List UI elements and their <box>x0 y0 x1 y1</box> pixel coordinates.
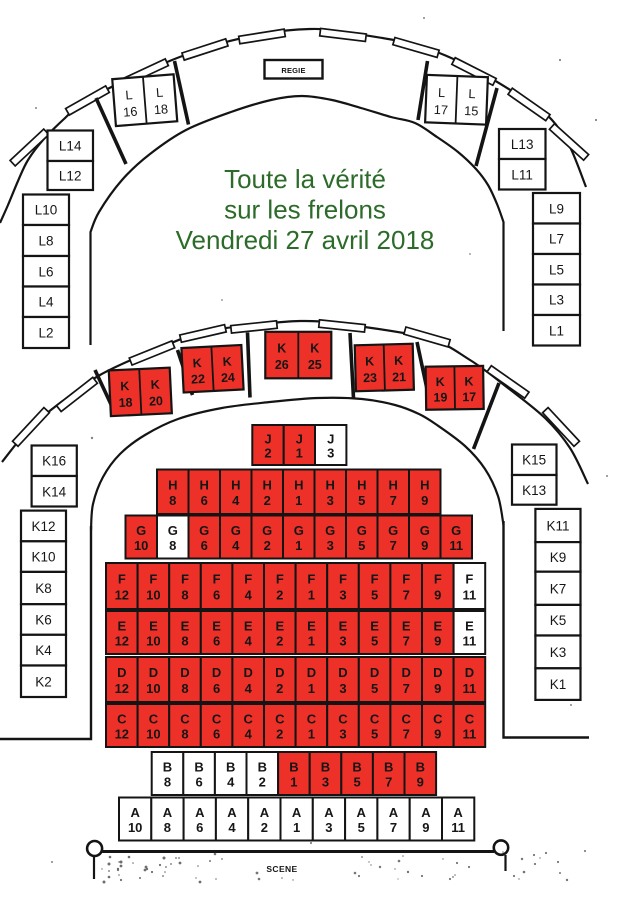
svg-text:4: 4 <box>228 820 236 835</box>
svg-text:A: A <box>389 805 399 820</box>
svg-text:22: 22 <box>191 372 206 387</box>
svg-text:A: A <box>260 805 270 820</box>
svg-text:H: H <box>263 477 272 492</box>
svg-text:2: 2 <box>276 588 283 603</box>
svg-text:C: C <box>402 711 412 726</box>
svg-text:G: G <box>199 523 209 538</box>
svg-text:7: 7 <box>403 681 410 696</box>
svg-text:11: 11 <box>463 633 477 648</box>
svg-text:B: B <box>352 759 361 774</box>
svg-text:15: 15 <box>464 103 479 119</box>
svg-text:9: 9 <box>421 493 428 508</box>
svg-text:11: 11 <box>463 681 477 696</box>
svg-text:K: K <box>436 375 445 389</box>
svg-text:F: F <box>276 571 284 586</box>
svg-text:E: E <box>307 618 316 633</box>
svg-text:5: 5 <box>358 493 365 508</box>
svg-text:L4: L4 <box>38 295 54 310</box>
svg-text:11: 11 <box>463 726 477 741</box>
svg-text:E: E <box>465 618 474 633</box>
svg-text:H: H <box>294 477 303 492</box>
svg-text:12: 12 <box>115 681 129 696</box>
svg-text:6: 6 <box>213 633 220 648</box>
svg-text:8: 8 <box>164 820 171 835</box>
svg-text:4: 4 <box>232 493 240 508</box>
svg-text:B: B <box>321 759 330 774</box>
svg-text:3: 3 <box>327 493 334 508</box>
svg-text:5: 5 <box>358 538 365 553</box>
svg-text:C: C <box>180 711 190 726</box>
svg-text:5: 5 <box>371 633 378 648</box>
svg-text:4: 4 <box>245 681 253 696</box>
svg-text:D: D <box>244 665 253 680</box>
svg-text:7: 7 <box>390 493 397 508</box>
svg-text:F: F <box>307 571 315 586</box>
svg-text:11: 11 <box>449 538 463 553</box>
svg-text:K: K <box>310 342 319 356</box>
svg-text:K12: K12 <box>31 519 55 534</box>
svg-text:7: 7 <box>390 820 397 835</box>
svg-text:8: 8 <box>169 493 176 508</box>
svg-text:18: 18 <box>118 395 133 410</box>
svg-text:L13: L13 <box>511 137 534 152</box>
svg-text:1: 1 <box>308 726 315 741</box>
svg-text:K16: K16 <box>42 454 66 469</box>
svg-text:1: 1 <box>295 538 302 553</box>
svg-text:9: 9 <box>421 538 428 553</box>
svg-text:sur les frelons: sur les frelons <box>224 195 386 225</box>
svg-text:G: G <box>294 523 304 538</box>
svg-text:8: 8 <box>164 774 171 789</box>
svg-text:E: E <box>433 618 442 633</box>
svg-text:1: 1 <box>308 633 315 648</box>
svg-text:1: 1 <box>308 588 315 603</box>
svg-text:1: 1 <box>296 445 303 460</box>
svg-text:D: D <box>370 665 379 680</box>
svg-text:A: A <box>453 805 463 820</box>
svg-text:8: 8 <box>181 588 188 603</box>
svg-text:3: 3 <box>327 538 334 553</box>
svg-text:K4: K4 <box>35 643 52 658</box>
svg-text:11: 11 <box>451 820 465 835</box>
svg-text:2: 2 <box>261 820 268 835</box>
svg-text:3: 3 <box>339 726 346 741</box>
svg-text:5: 5 <box>371 726 378 741</box>
svg-text:H: H <box>200 477 209 492</box>
svg-text:4: 4 <box>245 726 253 741</box>
svg-text:1: 1 <box>293 820 300 835</box>
svg-text:H: H <box>168 477 177 492</box>
svg-text:L7: L7 <box>549 232 564 247</box>
svg-text:K: K <box>222 355 232 369</box>
svg-text:F: F <box>371 571 379 586</box>
svg-text:H: H <box>357 477 366 492</box>
svg-text:2: 2 <box>276 633 283 648</box>
svg-text:1: 1 <box>308 681 315 696</box>
svg-text:C: C <box>244 711 254 726</box>
svg-text:K3: K3 <box>550 645 567 660</box>
svg-text:A: A <box>357 805 367 820</box>
svg-text:H: H <box>420 477 429 492</box>
svg-text:K15: K15 <box>522 453 546 468</box>
svg-text:L11: L11 <box>511 167 533 182</box>
svg-text:10: 10 <box>146 633 160 648</box>
svg-text:10: 10 <box>146 726 160 741</box>
svg-text:7: 7 <box>385 774 392 789</box>
svg-text:L: L <box>155 85 163 101</box>
svg-text:L10: L10 <box>35 203 58 218</box>
svg-text:G: G <box>325 523 335 538</box>
svg-text:E: E <box>370 618 379 633</box>
svg-text:D: D <box>465 665 474 680</box>
svg-text:A: A <box>195 805 205 820</box>
svg-text:L1: L1 <box>549 323 564 338</box>
svg-text:F: F <box>434 571 442 586</box>
svg-text:17: 17 <box>434 102 449 118</box>
svg-text:J: J <box>264 431 271 446</box>
svg-text:10: 10 <box>146 681 160 696</box>
svg-text:6: 6 <box>213 588 220 603</box>
svg-text:C: C <box>149 711 159 726</box>
svg-text:G: G <box>451 523 461 538</box>
svg-text:D: D <box>433 665 442 680</box>
svg-text:F: F <box>181 571 189 586</box>
svg-text:L2: L2 <box>38 326 53 341</box>
svg-text:9: 9 <box>417 774 424 789</box>
svg-text:C: C <box>275 711 285 726</box>
svg-text:6: 6 <box>196 820 203 835</box>
svg-text:3: 3 <box>339 588 346 603</box>
svg-text:B: B <box>384 759 393 774</box>
svg-text:K: K <box>394 354 403 368</box>
svg-text:9: 9 <box>434 726 441 741</box>
svg-text:L5: L5 <box>549 262 564 277</box>
svg-text:G: G <box>388 523 398 538</box>
svg-text:6: 6 <box>213 726 220 741</box>
svg-text:F: F <box>402 571 410 586</box>
svg-text:2: 2 <box>264 493 271 508</box>
svg-text:J: J <box>296 431 303 446</box>
svg-text:B: B <box>226 759 235 774</box>
svg-text:2: 2 <box>259 774 266 789</box>
svg-text:2: 2 <box>276 726 283 741</box>
svg-text:8: 8 <box>181 726 188 741</box>
svg-text:F: F <box>339 571 347 586</box>
svg-text:G: G <box>231 523 241 538</box>
svg-text:K1: K1 <box>550 677 567 692</box>
svg-text:J: J <box>327 431 334 446</box>
svg-text:25: 25 <box>308 358 322 372</box>
svg-text:C: C <box>338 711 348 726</box>
svg-text:K13: K13 <box>522 483 546 498</box>
svg-text:SCENE: SCENE <box>266 864 297 874</box>
svg-text:L6: L6 <box>38 264 53 279</box>
svg-text:7: 7 <box>403 726 410 741</box>
svg-text:7: 7 <box>403 633 410 648</box>
svg-text:3: 3 <box>325 820 332 835</box>
svg-text:21: 21 <box>392 370 406 384</box>
svg-text:11: 11 <box>463 588 477 603</box>
svg-text:D: D <box>338 665 347 680</box>
svg-text:12: 12 <box>115 726 129 741</box>
svg-text:26: 26 <box>275 358 289 372</box>
svg-text:A: A <box>131 805 141 820</box>
svg-text:K5: K5 <box>550 613 567 628</box>
svg-text:2: 2 <box>264 445 271 460</box>
svg-text:B: B <box>416 759 425 774</box>
svg-text:20: 20 <box>149 394 164 409</box>
svg-text:F: F <box>118 571 126 586</box>
svg-text:K: K <box>192 356 202 370</box>
svg-text:F: F <box>244 571 252 586</box>
svg-text:H: H <box>389 477 398 492</box>
svg-text:A: A <box>421 805 431 820</box>
svg-text:G: G <box>262 523 272 538</box>
svg-text:E: E <box>244 618 253 633</box>
svg-text:K: K <box>464 375 473 389</box>
svg-text:H: H <box>231 477 240 492</box>
svg-text:G: G <box>420 523 430 538</box>
svg-text:A: A <box>292 805 302 820</box>
svg-text:K: K <box>150 378 160 392</box>
svg-text:Toute la vérité: Toute la vérité <box>224 164 386 194</box>
svg-text:C: C <box>212 711 222 726</box>
svg-text:4: 4 <box>245 588 253 603</box>
svg-text:G: G <box>357 523 367 538</box>
svg-text:K: K <box>365 354 374 368</box>
svg-text:8: 8 <box>181 633 188 648</box>
svg-text:C: C <box>307 711 317 726</box>
svg-text:L8: L8 <box>38 234 53 249</box>
svg-text:D: D <box>117 665 126 680</box>
svg-text:L12: L12 <box>59 169 82 184</box>
svg-text:9: 9 <box>422 820 429 835</box>
svg-text:4: 4 <box>245 633 253 648</box>
svg-text:A: A <box>163 805 173 820</box>
svg-text:G: G <box>136 523 146 538</box>
svg-text:5: 5 <box>353 774 360 789</box>
svg-text:F: F <box>465 571 473 586</box>
svg-text:K7: K7 <box>550 581 567 596</box>
svg-text:D: D <box>149 665 158 680</box>
svg-text:B: B <box>289 759 298 774</box>
svg-text:A: A <box>324 805 334 820</box>
svg-text:F: F <box>149 571 157 586</box>
svg-text:6: 6 <box>201 493 208 508</box>
svg-text:3: 3 <box>327 445 334 460</box>
svg-text:19: 19 <box>433 390 447 404</box>
svg-text:E: E <box>181 618 190 633</box>
svg-text:6: 6 <box>213 681 220 696</box>
svg-text:K2: K2 <box>35 674 52 689</box>
svg-text:1: 1 <box>290 774 297 789</box>
svg-text:9: 9 <box>434 588 441 603</box>
svg-text:E: E <box>339 618 348 633</box>
svg-text:4: 4 <box>232 538 240 553</box>
svg-text:K11: K11 <box>546 519 569 534</box>
svg-text:E: E <box>149 618 158 633</box>
svg-text:8: 8 <box>169 538 176 553</box>
svg-text:10: 10 <box>134 538 148 553</box>
svg-text:9: 9 <box>434 681 441 696</box>
svg-text:16: 16 <box>123 104 138 120</box>
svg-text:B: B <box>194 759 203 774</box>
svg-text:1: 1 <box>295 493 302 508</box>
svg-text:4: 4 <box>227 774 235 789</box>
svg-text:6: 6 <box>201 538 208 553</box>
svg-text:K14: K14 <box>42 484 67 499</box>
svg-text:17: 17 <box>462 390 476 404</box>
svg-text:L14: L14 <box>59 139 82 154</box>
svg-text:REGIE: REGIE <box>281 66 305 75</box>
svg-text:K6: K6 <box>35 613 52 628</box>
svg-text:7: 7 <box>403 588 410 603</box>
svg-text:7: 7 <box>390 538 397 553</box>
svg-text:D: D <box>180 665 189 680</box>
svg-text:23: 23 <box>363 371 377 385</box>
svg-text:5: 5 <box>371 681 378 696</box>
svg-text:H: H <box>326 477 335 492</box>
svg-text:K10: K10 <box>31 550 55 565</box>
svg-text:K: K <box>277 342 286 356</box>
svg-text:L: L <box>468 86 476 101</box>
svg-text:C: C <box>433 711 443 726</box>
svg-text:K: K <box>120 379 130 393</box>
svg-text:G: G <box>168 523 178 538</box>
svg-text:K9: K9 <box>550 550 567 565</box>
svg-text:6: 6 <box>195 774 202 789</box>
svg-text:9: 9 <box>434 633 441 648</box>
svg-text:3: 3 <box>339 681 346 696</box>
svg-text:L: L <box>125 87 133 103</box>
svg-text:D: D <box>275 665 284 680</box>
svg-text:L: L <box>438 85 446 100</box>
svg-text:A: A <box>227 805 237 820</box>
svg-text:2: 2 <box>264 538 271 553</box>
svg-text:D: D <box>307 665 316 680</box>
svg-text:2: 2 <box>276 681 283 696</box>
svg-text:3: 3 <box>339 633 346 648</box>
svg-text:D: D <box>402 665 411 680</box>
svg-text:F: F <box>213 571 221 586</box>
svg-text:5: 5 <box>371 588 378 603</box>
svg-text:12: 12 <box>115 588 129 603</box>
svg-text:C: C <box>465 711 475 726</box>
svg-text:D: D <box>212 665 221 680</box>
svg-text:8: 8 <box>181 681 188 696</box>
svg-text:K8: K8 <box>35 581 52 596</box>
svg-text:5: 5 <box>358 820 365 835</box>
svg-text:C: C <box>117 711 127 726</box>
svg-text:10: 10 <box>128 820 142 835</box>
svg-text:E: E <box>117 618 126 633</box>
svg-text:18: 18 <box>153 101 168 117</box>
svg-text:3: 3 <box>322 774 329 789</box>
svg-text:12: 12 <box>115 633 129 648</box>
svg-text:E: E <box>402 618 411 633</box>
svg-text:E: E <box>212 618 221 633</box>
svg-text:L9: L9 <box>549 201 564 216</box>
svg-text:L3: L3 <box>549 293 564 308</box>
svg-text:B: B <box>258 759 267 774</box>
svg-text:C: C <box>370 711 380 726</box>
svg-text:B: B <box>163 759 172 774</box>
svg-text:24: 24 <box>221 370 236 385</box>
svg-text:Vendredi 27 avril 2018: Vendredi 27 avril 2018 <box>176 225 435 255</box>
svg-text:E: E <box>275 618 284 633</box>
svg-text:10: 10 <box>146 588 160 603</box>
